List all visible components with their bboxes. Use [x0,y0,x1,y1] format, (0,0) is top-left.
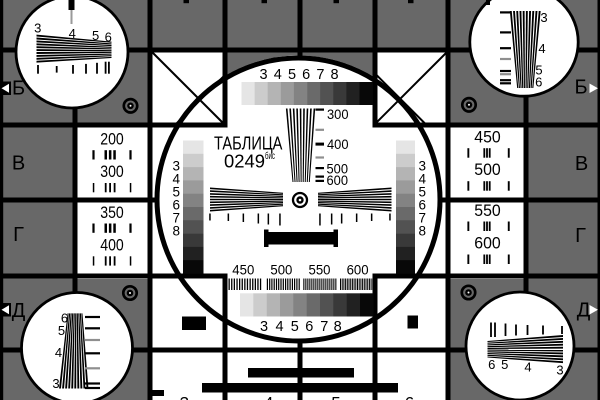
svg-text:550: 550 [309,262,331,277]
svg-text:3: 3 [540,10,547,25]
svg-text:Б: Б [574,76,587,98]
svg-text:550: 550 [474,202,501,220]
svg-text:В: В [12,153,25,175]
svg-text:7: 7 [320,319,328,335]
svg-text:6: 6 [302,67,310,83]
svg-text:5: 5 [331,394,340,400]
svg-text:7: 7 [316,67,324,83]
svg-text:400: 400 [100,236,124,254]
svg-text:4: 4 [264,394,273,400]
svg-text:200: 200 [100,131,124,149]
svg-text:4: 4 [275,319,283,335]
svg-text:400: 400 [327,137,349,152]
svg-text:4: 4 [69,26,76,41]
svg-text:500: 500 [270,262,292,277]
svg-text:6: 6 [535,75,542,90]
svg-text:300: 300 [327,107,349,122]
svg-text:бис: бис [265,150,275,162]
svg-text:Б: Б [12,78,25,100]
svg-text:3: 3 [180,394,189,400]
svg-text:4: 4 [524,359,531,374]
svg-text:500: 500 [474,161,501,179]
svg-text:450: 450 [474,129,501,147]
svg-text:450: 450 [232,262,254,277]
svg-text:8: 8 [334,319,342,335]
svg-text:Г: Г [13,224,24,246]
svg-text:6: 6 [405,394,414,400]
svg-text:5: 5 [288,67,296,83]
svg-text:6: 6 [488,357,495,372]
svg-text:5: 5 [58,323,65,338]
svg-text:4: 4 [274,67,282,83]
svg-text:4: 4 [55,345,62,360]
svg-text:600: 600 [327,173,349,188]
svg-text:600: 600 [474,234,501,252]
svg-text:8: 8 [419,224,427,239]
svg-text:8: 8 [331,67,339,83]
svg-text:5: 5 [501,357,508,372]
svg-text:6: 6 [305,319,313,335]
svg-text:3: 3 [260,67,268,83]
svg-text:350: 350 [100,204,124,222]
svg-text:3: 3 [260,319,268,335]
svg-text:Д: Д [12,300,26,322]
svg-text:300: 300 [100,163,124,181]
svg-text:0249: 0249 [224,151,265,172]
svg-text:600: 600 [347,262,369,277]
svg-text:3: 3 [556,362,563,377]
svg-text:В: В [575,153,588,175]
svg-text:5: 5 [92,28,99,43]
svg-text:8: 8 [172,224,180,239]
svg-text:3: 3 [52,376,59,391]
svg-text:5: 5 [291,319,299,335]
svg-text:6: 6 [105,30,112,45]
svg-text:Д: Д [577,300,591,322]
svg-text:4: 4 [538,41,545,56]
svg-text:Г: Г [575,225,586,247]
svg-text:3: 3 [34,21,41,36]
